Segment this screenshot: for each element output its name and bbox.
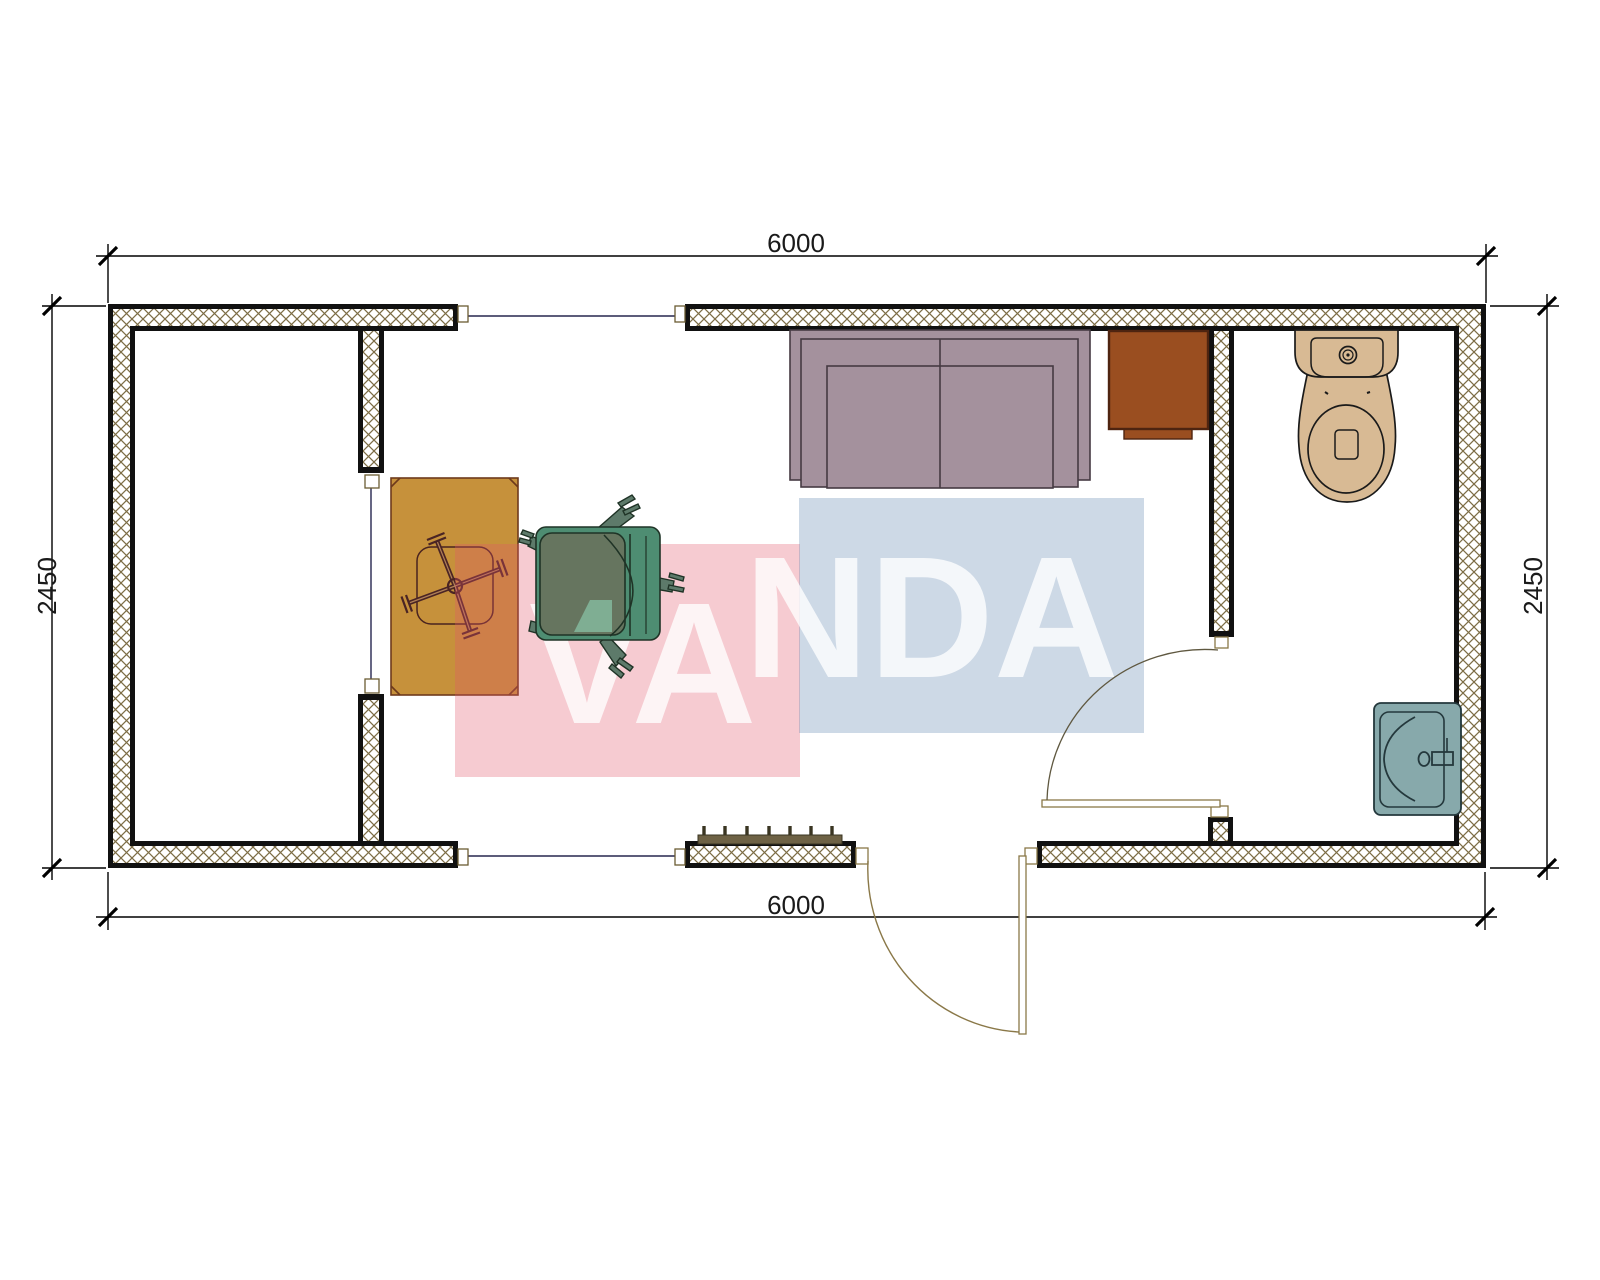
- svg-text:2450: 2450: [32, 557, 62, 615]
- svg-text:NDA: NDA: [744, 520, 1119, 714]
- svg-text:6000: 6000: [767, 890, 825, 920]
- svg-text:2450: 2450: [1518, 557, 1548, 615]
- svg-text:6000: 6000: [767, 228, 825, 258]
